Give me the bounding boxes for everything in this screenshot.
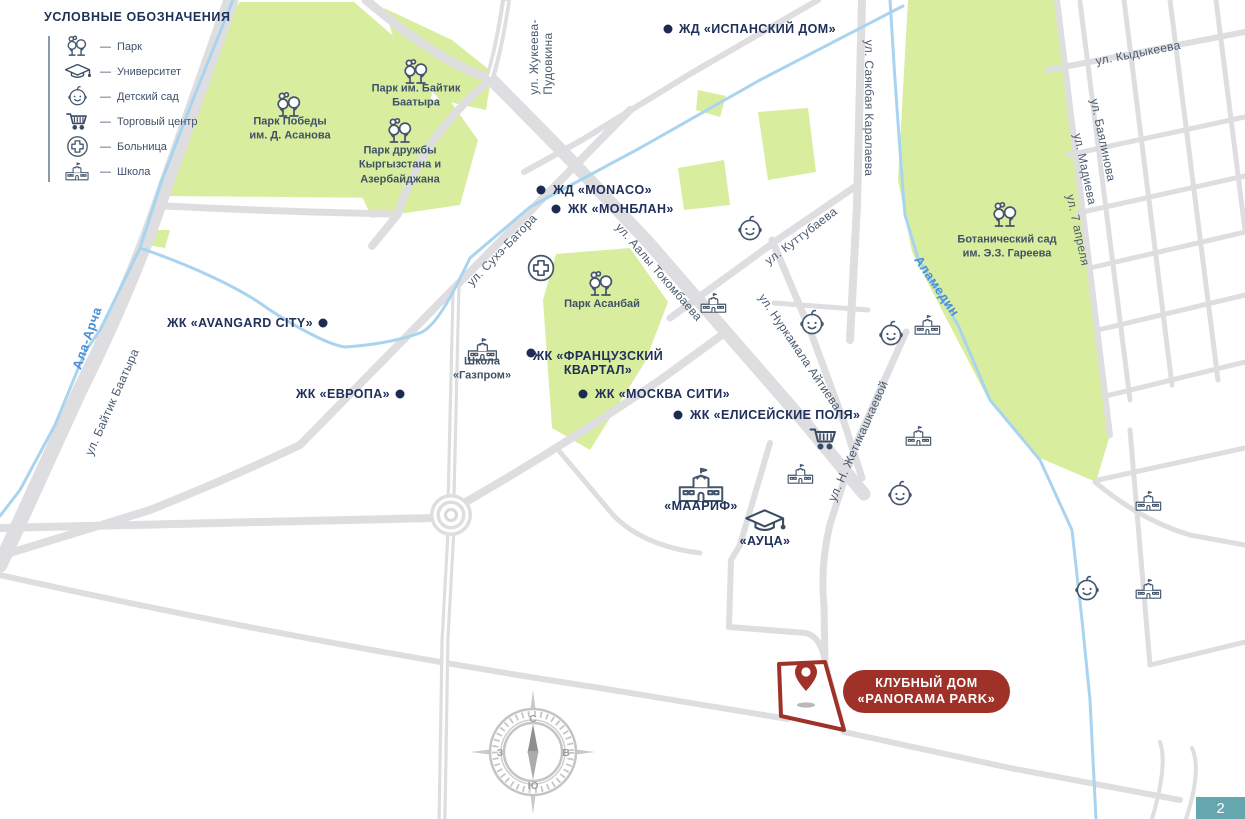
street-label-sayakbaya-karalaeva: ул. Саякбая Каралаева — [862, 40, 876, 177]
legend-item-school: — Школа — [62, 159, 264, 184]
poi-label-monaco: ЖД «MONACO» — [553, 183, 652, 197]
school-icon — [788, 465, 812, 484]
legend-divider — [48, 36, 50, 182]
page-number-badge: 2 — [1196, 797, 1245, 819]
hospital-icon — [529, 256, 554, 281]
kindergarten-icon — [1076, 577, 1098, 600]
school-icon — [62, 161, 92, 183]
map-legend: УСЛОВНЫЕ ОБОЗНАЧЕНИЯ — Парк — Университе… — [44, 10, 264, 184]
poi-label-avangard-city: ЖК «AVANGARD CITY» — [167, 316, 313, 330]
poi-label-evropa: ЖК «ЕВРОПА» — [296, 387, 390, 401]
compass-north-label: С — [529, 713, 537, 725]
poi-label-french-quarter: ЖК «ФРАНЦУЗСКИЙ КВАРТАЛ» — [533, 349, 663, 377]
pin-shadow — [797, 702, 815, 707]
project-badge-line1: КЛУБНЫЙ ДОМ — [875, 676, 978, 692]
street-label-zhukeeva: ул. Жукеева- Пудовкина — [527, 19, 555, 95]
university-icon — [62, 62, 92, 82]
compass-rose: С Ю З В — [471, 690, 595, 814]
poi-label-maarif: «МААРИФ» — [664, 499, 738, 513]
poi-label-monblan: ЖК «МОНБЛАН» — [568, 202, 674, 216]
project-plot — [779, 661, 844, 730]
legend-item-park: — Парк — [62, 34, 264, 59]
legend-item-kindergarten: — Детский сад — [62, 84, 264, 109]
hospital-icon — [62, 134, 92, 159]
location-map-slide: С Ю З В УСЛОВНЫЕ ОБОЗНАЧЕНИЯ — Парк — Ун… — [0, 0, 1245, 819]
park-label-pobedy: Парк Победы им. Д. Асанова — [249, 115, 330, 144]
poi-label-auca: «АУЦА» — [740, 534, 791, 548]
park-label-botanical: Ботанический сад им. Э.З. Гареева — [957, 233, 1056, 262]
poi-label-moskva-city: ЖК «МОСКВА СИТИ» — [595, 387, 730, 401]
school-icon — [906, 427, 930, 446]
maarif-school-icon — [680, 469, 723, 501]
park-label-baytik: Парк им. Байтик Баатыра — [372, 82, 461, 111]
kindergarten-icon — [880, 322, 902, 345]
school-icon — [1136, 580, 1160, 599]
project-badge: КЛУБНЫЙ ДОМ «PANORAMA PARK» — [843, 670, 1010, 713]
kindergarten-icon — [739, 217, 761, 240]
compass-south-label: Ю — [528, 780, 539, 792]
school-icon — [1136, 492, 1160, 511]
kindergarten-icon — [889, 482, 911, 505]
kindergarten-icon — [62, 84, 92, 109]
poi-label-gazprom-school: Школа «Газпром» — [453, 355, 511, 384]
park-icon — [62, 34, 92, 60]
legend-item-mall: — Торговый центр — [62, 109, 264, 134]
road-karalaeva — [850, 0, 862, 340]
compass-east-label: В — [562, 747, 570, 759]
legend-title: УСЛОВНЫЕ ОБОЗНАЧЕНИЯ — [44, 10, 264, 24]
poi-label-ispansky-dom: ЖД «ИСПАНСКИЙ ДОМ» — [679, 22, 836, 36]
shopping-cart-icon — [62, 109, 92, 134]
project-badge-line2: «PANORAMA PARK» — [857, 691, 995, 707]
legend-item-hospital: — Больница — [62, 134, 264, 159]
park-label-druzhby: Парк дружбы Кыргызстана и Азербайджана — [359, 144, 441, 187]
school-icon — [915, 316, 939, 335]
roundabout — [435, 499, 467, 531]
compass-west-label: З — [497, 747, 504, 759]
park-label-asanbay: Парк Асанбай — [564, 297, 640, 311]
legend-item-university: — Университет — [62, 59, 264, 84]
